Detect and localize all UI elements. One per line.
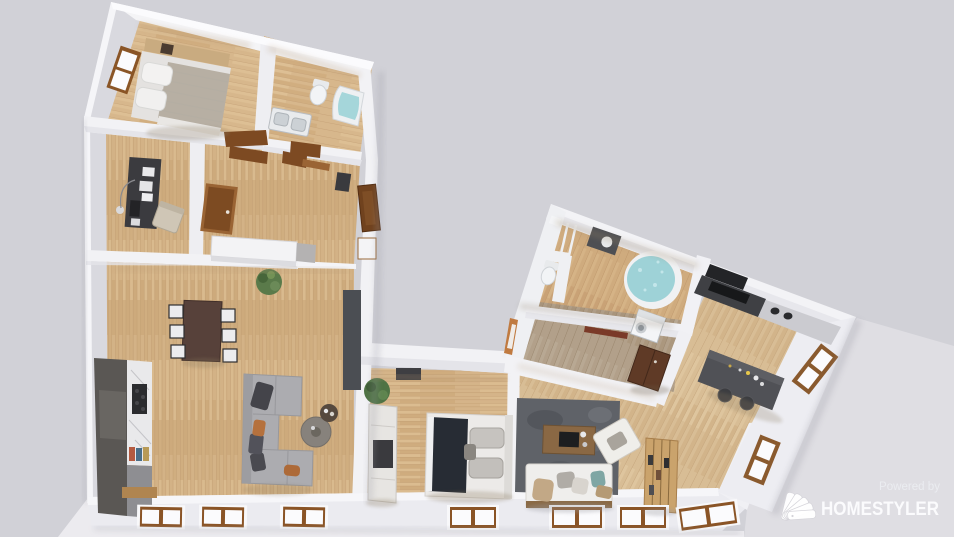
svg-text:Powered by: Powered by xyxy=(879,481,940,493)
svg-text:HOMESTYLER: HOMESTYLER xyxy=(821,499,939,520)
